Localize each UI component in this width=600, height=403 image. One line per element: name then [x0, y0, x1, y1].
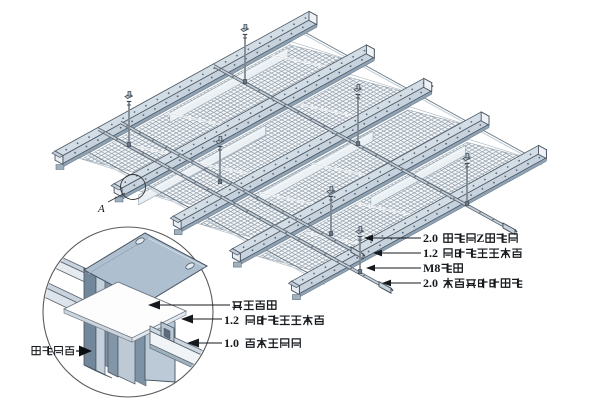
svg-text:1.2: 1.2	[423, 246, 438, 260]
svg-text:1.0: 1.0	[224, 336, 239, 350]
svg-text:Z: Z	[476, 231, 484, 245]
svg-text:M8: M8	[423, 261, 440, 275]
svg-text:1.2: 1.2	[224, 313, 239, 327]
svg-text:2.0: 2.0	[423, 231, 438, 245]
svg-text:2.0: 2.0	[423, 276, 438, 290]
svg-text:A: A	[97, 203, 105, 215]
